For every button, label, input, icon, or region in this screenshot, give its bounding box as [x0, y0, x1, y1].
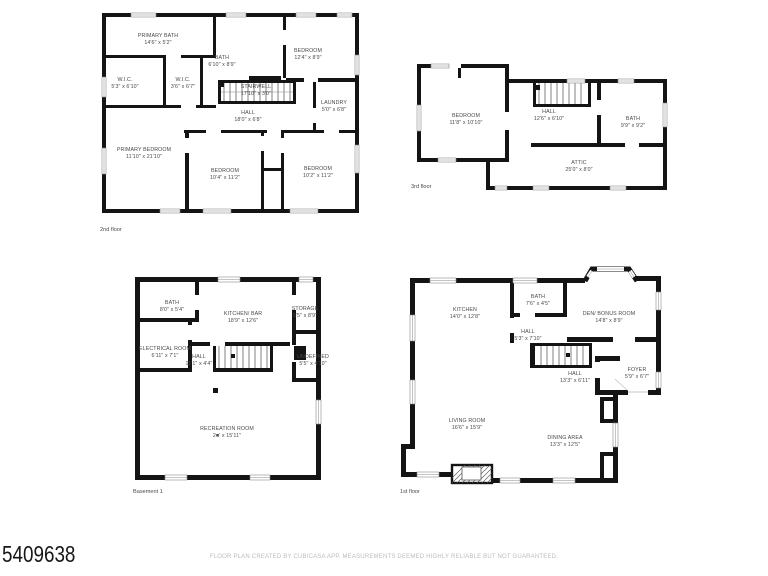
room-label-bath: BATH 6'10" x 8'9": [208, 55, 235, 69]
room-label-bath: BATH 9'9" x 9'2": [621, 116, 645, 130]
windows: [410, 278, 661, 483]
disclaimer-text: FLOOR PLAN CREATED BY CUBICASA APP. MEAS…: [0, 554, 768, 560]
room-label-hall: HALL 11'1" x 4'4": [186, 354, 213, 368]
room-label-hall: HALL 18'0" x 6'8": [234, 110, 261, 124]
room-label-kitchen-bar: KITCHEN/ BAR 18'9" x 12'6": [224, 311, 262, 325]
room-label-bath: BATH 7'6" x 4'5": [526, 294, 550, 308]
stairwell-icon: [533, 83, 591, 107]
room-label-dining-area: DINING AREA 13'3" x 12'5": [547, 435, 582, 449]
room-label-kitchen: KITCHEN 14'0" x 12'8": [450, 307, 480, 321]
room-label-bedroom: BEDROOM 10'2" x 11'2": [303, 166, 333, 180]
floor-label-1st-floor: 1st floor: [400, 489, 420, 496]
floor-label-basement-1: Basement 1: [133, 489, 163, 496]
room-label-wic: W.I.C. 5'3" x 6'10": [111, 77, 138, 91]
floor-plan-sheet: PRIMARY BATH 14'6" x 5'2" BATH 6'10" x 8…: [0, 0, 768, 576]
floor-label-2nd-floor: 2nd floor: [100, 227, 122, 234]
room-label-storage: STORAGE 5'5" x 8'9": [292, 306, 319, 320]
floor-label-3rd-floor: 3rd floor: [411, 184, 432, 191]
room-label-bedroom: BEDROOM 10'4" x 11'2": [210, 168, 240, 182]
room-label-laundry: LAUNDRY 5'0" x 6'8": [321, 100, 347, 114]
room-label-recreation-room: RECREATION ROOM 2■' x 15'11": [200, 426, 254, 440]
room-label-bedroom: BEDROOM 12'4" x 8'9": [294, 48, 322, 62]
floorplan-3rd-floor: [413, 56, 691, 201]
room-label-bedroom: BEDROOM 11'8" x 10'10": [449, 113, 482, 127]
room-label-primary-bedroom: PRIMARY BEDROOM 11'10" x 21'10": [117, 147, 171, 161]
room-label-foyer: FOYER 5'9" x 6'7": [625, 367, 649, 381]
room-label-attic: ATTIC 25'0" x 8'0": [565, 160, 592, 174]
room-label-electrical-room: ELECTRICAL ROOM 6'11" x 7'1": [139, 346, 191, 360]
room-label-hall: HALL 5'3" x 7'10": [514, 329, 541, 343]
watermark-number: 5409638: [2, 541, 75, 568]
room-label-hall: HALL 12'6" x 6'10": [534, 109, 564, 123]
room-label-undefined: UNDEFINED 5'5" x 4'10": [297, 354, 329, 368]
room-label-den-bonus-room: DEN/ BONUS ROOM 14'8" x 8'9": [583, 311, 635, 325]
room-label-hall: HALL 13'3" x 6'11": [560, 371, 590, 385]
room-label-bath: BATH 8'0" x 5'4": [160, 300, 184, 314]
room-label-stairwell: STAIRWELL 17'10" x 3'0": [241, 84, 271, 98]
stairwell-icon: [213, 346, 273, 372]
stairwell-icon: [530, 343, 592, 368]
room-label-living-room: LIVING ROOM 16'6" x 15'9": [449, 418, 485, 432]
room-label-primary-bath: PRIMARY BATH 14'6" x 5'2": [138, 33, 178, 47]
fireplace-icon: [452, 465, 492, 483]
room-label-wic: W.I.C. 3'6" x 6'7": [171, 77, 195, 91]
